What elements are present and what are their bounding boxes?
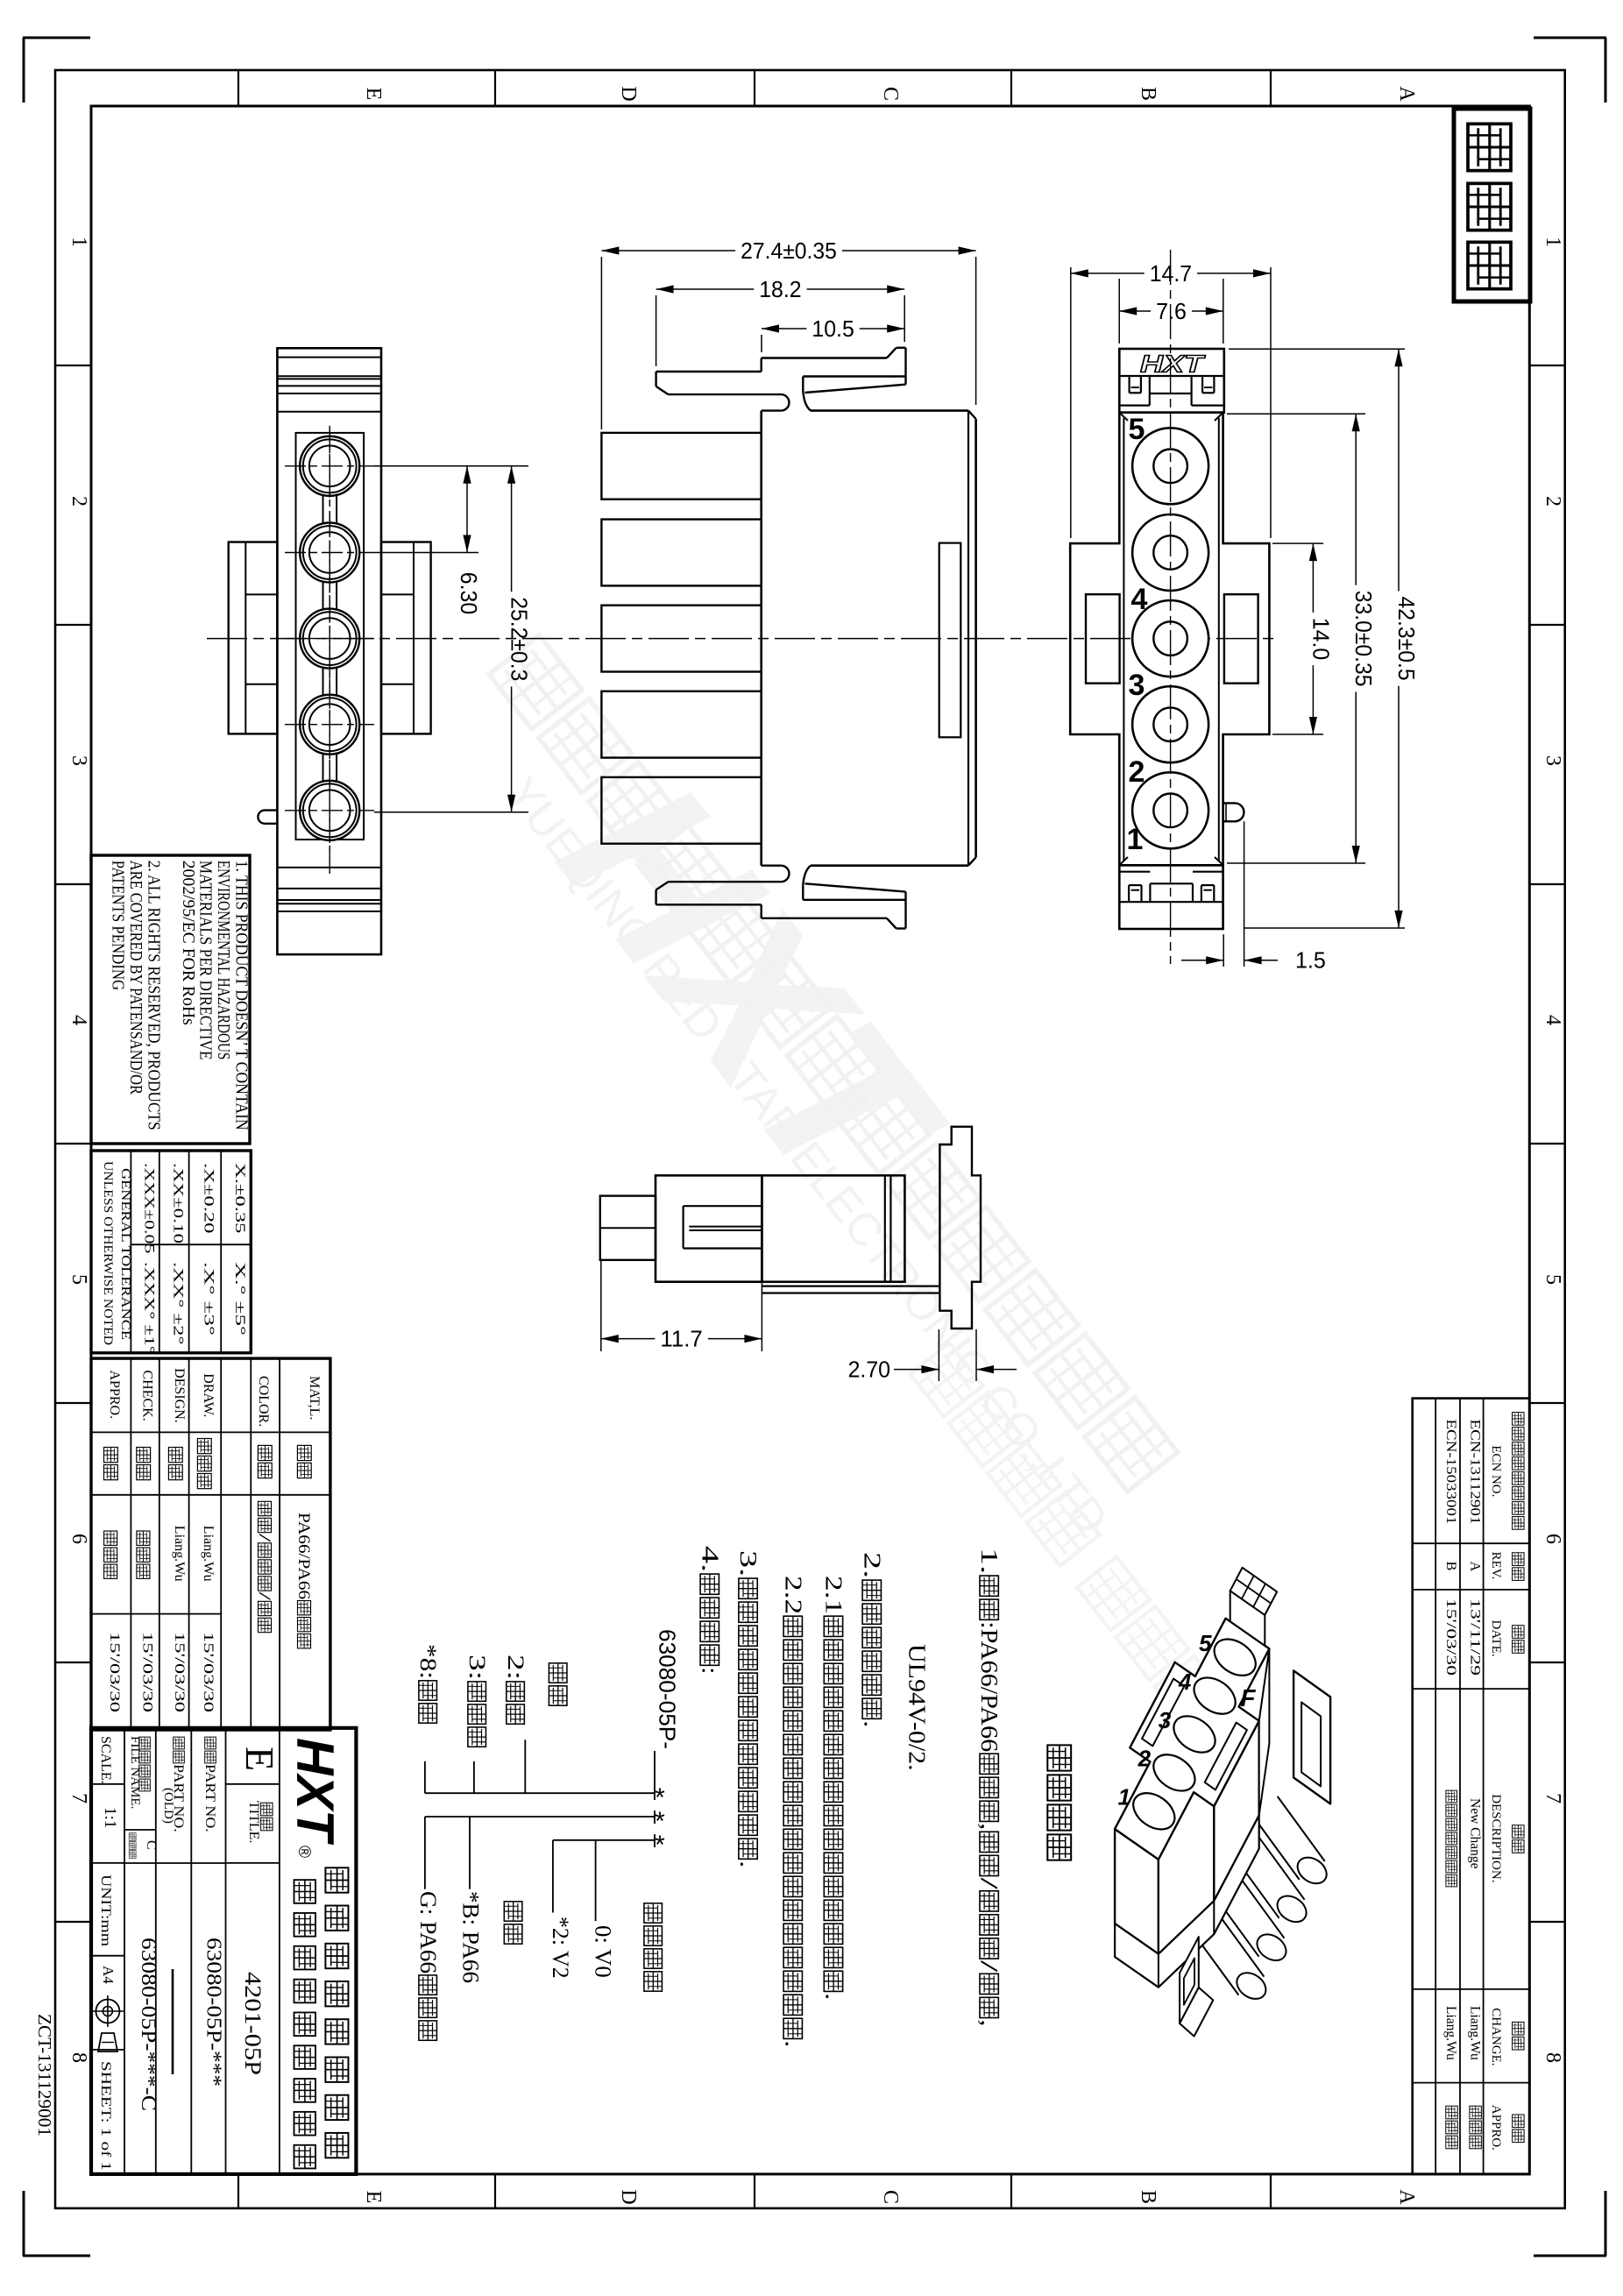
svg-text:APPRO.: APPRO. [107, 1371, 122, 1420]
svg-text:ECN-13112901: ECN-13112901 [1467, 1420, 1482, 1525]
svg-text:3: 3 [1541, 755, 1564, 766]
svg-text:11.7: 11.7 [660, 1326, 702, 1352]
svg-text:Liang.Wu: Liang.Wu [1467, 2006, 1482, 2060]
svg-text:PATENTS PENDING: PATENTS PENDING [109, 861, 128, 991]
svg-text:Liang.Wu: Liang.Wu [201, 1526, 216, 1582]
svg-text:7: 7 [1541, 1793, 1564, 1803]
svg-text:TITLE.: TITLE. [246, 1801, 261, 1843]
svg-text:3.: 3. [735, 1550, 762, 1577]
svg-text:.: . [735, 1860, 762, 1867]
svg-text:18.2: 18.2 [759, 276, 801, 302]
svg-text:25.2±0.3: 25.2±0.3 [507, 597, 533, 681]
svg-text:.XX±0.10: .XX±0.10 [171, 1163, 186, 1244]
svg-text:E: E [237, 1747, 282, 1771]
svg-text:6: 6 [67, 1534, 90, 1544]
svg-text:8: 8 [1541, 2052, 1564, 2063]
svg-text:C: C [879, 87, 902, 101]
svg-text:DATE.: DATE. [1489, 1620, 1503, 1657]
svg-text:B: B [1137, 2190, 1159, 2204]
svg-text:F: F [1240, 1684, 1256, 1711]
svg-text:5: 5 [1199, 1630, 1212, 1656]
svg-text:*8:: *8: [415, 1644, 441, 1679]
svg-text:2:: 2: [503, 1655, 528, 1680]
svg-text:2002/95/EC FOR RoHs: 2002/95/EC FOR RoHs [179, 861, 198, 1025]
svg-text:G: PA66: G: PA66 [415, 1891, 441, 1974]
svg-text:Liang.Wu: Liang.Wu [172, 1526, 187, 1582]
svg-text:C: C [879, 2190, 902, 2204]
svg-text:A: A [1467, 1562, 1482, 1572]
svg-text::PA66/PA66: :PA66/PA66 [976, 1621, 1003, 1752]
svg-text:5: 5 [67, 1274, 90, 1285]
svg-text:4: 4 [1178, 1669, 1192, 1695]
svg-text:UL94V-0/2.: UL94V-0/2. [904, 1644, 930, 1771]
svg-text:1.: 1. [976, 1548, 1003, 1574]
svg-text:.X±0.20: .X±0.20 [202, 1163, 216, 1234]
svg-text:/: / [255, 1534, 273, 1543]
svg-text:REV.: REV. [1489, 1552, 1503, 1580]
svg-text:1: 1 [1118, 1784, 1130, 1811]
svg-text:13'/11/29: 13'/11/29 [1467, 1598, 1482, 1676]
svg-text:ARE COVERED BY PATENSAND/OR: ARE COVERED BY PATENSAND/OR [126, 861, 145, 1095]
svg-text:3: 3 [67, 755, 90, 766]
svg-text:4.: 4. [697, 1546, 723, 1572]
svg-text:33.0±0.35: 33.0±0.35 [1350, 591, 1377, 687]
svg-text:15'/03/30: 15'/03/30 [1443, 1598, 1458, 1676]
svg-text:.X° ±3°: .X° ±3° [202, 1262, 216, 1336]
svg-text:HXT: HXT [1140, 351, 1207, 378]
svg-text:ZCT-131129001: ZCT-131129001 [34, 2014, 55, 2137]
svg-text:2: 2 [67, 496, 90, 507]
svg-text:ECN-15033001: ECN-15033001 [1443, 1420, 1458, 1525]
svg-text:SHEET: 1 of 1: SHEET: 1 of 1 [98, 2061, 113, 2171]
svg-text:8: 8 [67, 2052, 90, 2063]
svg-text:3: 3 [1129, 669, 1145, 702]
svg-text:.: . [780, 2040, 806, 2047]
svg-text:/: / [976, 1877, 1003, 1889]
svg-text:DESCRIPTION.: DESCRIPTION. [1489, 1794, 1503, 1882]
svg-text:2.70: 2.70 [848, 1356, 890, 1382]
svg-text:New Change: New Change [1467, 1798, 1482, 1869]
svg-text:.XXX±0.05: .XXX±0.05 [142, 1163, 157, 1254]
svg-text:CHECK.: CHECK. [139, 1371, 154, 1421]
svg-text:X.° ±5°: X.° ±5° [232, 1262, 247, 1336]
svg-text:ENVIRONMENTAL HAZARDOUS: ENVIRONMENTAL HAZARDOUS [214, 861, 233, 1060]
svg-text:DRAW.: DRAW. [201, 1373, 216, 1417]
svg-text:7: 7 [67, 1793, 90, 1803]
svg-text:27.4±0.35: 27.4±0.35 [741, 237, 837, 264]
svg-text:®: ® [294, 1846, 313, 1858]
svg-text:*B: PA66: *B: PA66 [458, 1891, 484, 1983]
svg-text:/: / [255, 1592, 273, 1602]
svg-text:5: 5 [1129, 413, 1145, 446]
svg-text:3:: 3: [464, 1655, 490, 1680]
svg-text:PA66/PA66: PA66/PA66 [294, 1513, 313, 1599]
svg-text:UNLESS OTHERWISE NOTED: UNLESS OTHERWISE NOTED [101, 1161, 115, 1345]
svg-text:.: . [859, 1720, 885, 1727]
svg-text:2: 2 [1138, 1746, 1152, 1772]
svg-text:DESIGN.: DESIGN. [172, 1368, 187, 1423]
svg-text:15'/03/30: 15'/03/30 [172, 1632, 187, 1712]
svg-text:.XX° ±2°: .XX° ±2° [171, 1262, 186, 1345]
svg-text:2: 2 [1541, 496, 1564, 507]
svg-text:*: * [655, 1831, 665, 1860]
svg-text:63080-05P-***: 63080-05P-*** [202, 1938, 225, 2087]
svg-text:4201-05P: 4201-05P [240, 1972, 266, 2075]
svg-text:FILE NAME.: FILE NAME. [128, 1736, 142, 1809]
svg-text:15'/03/30: 15'/03/30 [139, 1632, 154, 1712]
svg-text:A: A [1395, 2189, 1418, 2205]
svg-text:2.1: 2.1 [821, 1576, 847, 1614]
svg-text:14.7: 14.7 [1150, 260, 1192, 287]
svg-text:7.6: 7.6 [1156, 298, 1187, 324]
svg-text:63080-05P-***-C: 63080-05P-***-C [137, 1938, 159, 2111]
svg-text:10.5: 10.5 [811, 315, 854, 342]
svg-text:APPRO.: APPRO. [1489, 2105, 1503, 2151]
svg-text:2.2: 2.2 [780, 1576, 806, 1614]
svg-text:UNIT:mm: UNIT:mm [98, 1874, 113, 1947]
svg-text:*2: V2: *2: V2 [548, 1917, 573, 1979]
svg-text:C: C [144, 1840, 159, 1850]
svg-text:ECN NO.: ECN NO. [1489, 1445, 1503, 1497]
svg-text:5: 5 [1541, 1274, 1564, 1285]
svg-text:E: E [362, 2191, 385, 2204]
svg-text:/: / [976, 1960, 1003, 1973]
svg-text:CHANGE.: CHANGE. [1489, 2008, 1503, 2066]
svg-text:.XXX° ±1°: .XXX° ±1° [142, 1262, 157, 1354]
svg-text:GENERAL TOLERANCE: GENERAL TOLERANCE [118, 1168, 132, 1340]
svg-text:D: D [617, 2189, 640, 2204]
svg-text:3: 3 [1159, 1707, 1172, 1733]
svg-text:14.0: 14.0 [1308, 618, 1334, 660]
svg-text:E: E [362, 88, 385, 101]
svg-text:SCALE.: SCALE. [98, 1736, 113, 1784]
svg-text:HXT: HXT [286, 1738, 344, 1845]
svg-text:COLOR.: COLOR. [256, 1376, 271, 1427]
svg-text:42.3±0.5: 42.3±0.5 [1393, 597, 1420, 681]
svg-text:4: 4 [1541, 1015, 1564, 1025]
svg-text:1.5: 1.5 [1295, 947, 1326, 974]
svg-text:Liang.Wu: Liang.Wu [1443, 2006, 1458, 2060]
svg-text:1:1: 1:1 [101, 1807, 119, 1828]
svg-text:2. ALL RIGHTS RESERVED, PRODUC: 2. ALL RIGHTS RESERVED, PRODUCTS [144, 861, 163, 1130]
svg-text:4: 4 [1131, 583, 1148, 616]
svg-text:63080-05P-: 63080-05P- [655, 1629, 681, 1749]
svg-text:B: B [1443, 1562, 1458, 1571]
svg-text:1. THIS PRODUCT DOESN’ T CONTA: 1. THIS PRODUCT DOESN’ T CONTAIN [231, 861, 251, 1130]
svg-text:.: . [821, 1993, 847, 2000]
svg-text:A4: A4 [100, 1966, 117, 1984]
svg-text:2: 2 [1129, 755, 1145, 789]
svg-text:(OLD): (OLD) [161, 1788, 175, 1824]
svg-text:4: 4 [67, 1015, 90, 1025]
svg-text:PART NO.: PART NO. [202, 1764, 217, 1832]
svg-text:,: , [976, 2019, 1003, 2026]
svg-text:MAT,L.: MAT,L. [307, 1376, 322, 1420]
svg-text:D: D [617, 86, 640, 101]
svg-text:6: 6 [1541, 1534, 1564, 1544]
svg-text:6.30: 6.30 [456, 572, 482, 614]
svg-text:15'/03/30: 15'/03/30 [201, 1632, 216, 1712]
svg-text:,: , [976, 1823, 1003, 1830]
svg-text:2.: 2. [859, 1552, 885, 1578]
svg-text::: : [697, 1667, 723, 1674]
svg-text:1: 1 [1541, 237, 1564, 247]
svg-text:1: 1 [67, 237, 90, 247]
svg-text:1: 1 [1127, 823, 1144, 856]
svg-text:15'/03/30: 15'/03/30 [107, 1632, 122, 1712]
svg-text:X.±0.35: X.±0.35 [232, 1163, 247, 1234]
svg-text:0: V0: 0: V0 [591, 1925, 616, 1978]
svg-text:B: B [1137, 87, 1159, 101]
svg-text:A: A [1395, 86, 1418, 102]
